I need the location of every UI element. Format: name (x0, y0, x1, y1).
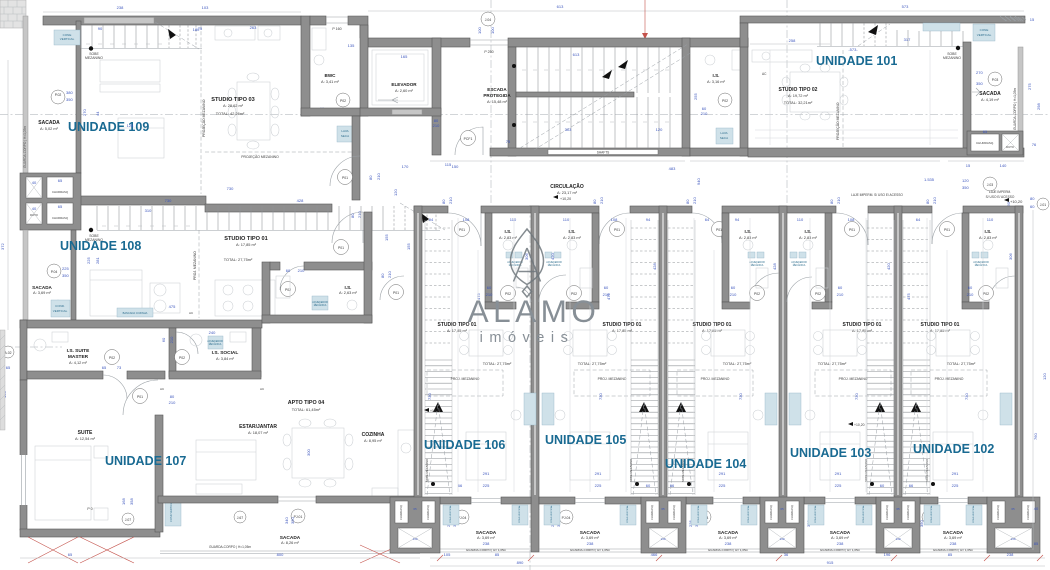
svg-text:210: 210 (692, 197, 697, 204)
svg-text:A: 8,95 m²: A: 8,95 m² (364, 438, 383, 443)
svg-text:PROJ. MEZANINO: PROJ. MEZANINO (701, 377, 730, 381)
svg-text:A.02: A.02 (5, 351, 12, 355)
svg-text:P02: P02 (340, 99, 346, 103)
svg-text:65: 65 (1011, 507, 1015, 511)
svg-text:135: 135 (348, 43, 355, 48)
svg-text:LAVA: LAVA (720, 131, 727, 135)
svg-text:CHURRASQ: CHURRASQ (996, 505, 1000, 520)
svg-text:428: 428 (772, 263, 777, 270)
svg-text:A: 19,72 m²: A: 19,72 m² (788, 93, 809, 98)
svg-text:LAJE IMPERM.: LAJE IMPERM. (989, 190, 1011, 194)
svg-text:85: 85 (948, 552, 953, 557)
svg-text:VERTICAL: VERTICAL (53, 309, 68, 313)
svg-text:263: 263 (250, 25, 257, 30)
svg-text:UNIDADE 106: UNIDADE 106 (424, 438, 505, 452)
svg-text:130: 130 (895, 537, 900, 541)
svg-text:AC: AC (762, 72, 767, 76)
svg-text:P01: P01 (614, 228, 620, 232)
svg-text:15: 15 (966, 163, 971, 168)
svg-text:+10,20: +10,20 (854, 423, 865, 427)
svg-text:65: 65 (58, 178, 63, 183)
svg-text:730: 730 (598, 393, 603, 400)
svg-text:SOBE MEZANINO: SOBE MEZANINO (629, 458, 633, 482)
svg-text:PROJ. MEZANINO: PROJ. MEZANINO (935, 377, 964, 381)
svg-text:GUARDA-CORPO | H= 1,05m: GUARDA-CORPO | H= 1,05m (708, 548, 749, 552)
svg-text:A: 17,85 m²: A: 17,85 m² (236, 242, 257, 247)
svg-text:A: 2,83 m²: A: 2,83 m² (739, 235, 758, 240)
svg-text:A: 17,85 m²: A: 17,85 m² (447, 328, 468, 333)
svg-text:A: 28,62 m²: A: 28,62 m² (223, 103, 244, 108)
svg-text:64: 64 (705, 217, 710, 222)
svg-text:110: 110 (510, 217, 517, 222)
svg-text:80: 80 (925, 199, 930, 204)
svg-text:65: 65 (6, 365, 11, 370)
svg-text:270: 270 (82, 109, 87, 116)
svg-text:P02: P02 (983, 292, 989, 296)
svg-text:108: 108 (611, 217, 618, 222)
svg-text:310: 310 (145, 208, 152, 213)
svg-text:PJ.04: PJ.04 (562, 516, 571, 520)
svg-text:73: 73 (117, 365, 122, 370)
svg-text:66: 66 (909, 483, 914, 488)
svg-text:210: 210 (433, 123, 440, 128)
svg-text:CIRCULAÇÃO: CIRCULAÇÃO (550, 183, 584, 190)
svg-text:COND VERTICAL: COND VERTICAL (697, 505, 700, 523)
svg-text:210: 210 (967, 292, 974, 297)
svg-text:170: 170 (402, 164, 409, 169)
svg-text:210: 210 (376, 173, 381, 180)
svg-text:SECA: SECA (720, 136, 728, 140)
svg-text:COND VERTICAL: COND VERTICAL (747, 505, 750, 523)
svg-text:65: 65 (780, 507, 784, 511)
svg-text:150: 150 (452, 164, 459, 169)
svg-text:+10,20: +10,20 (430, 409, 441, 413)
svg-text:108: 108 (463, 217, 470, 222)
svg-text:TOTAL: 27,75m²: TOTAL: 27,75m² (818, 361, 847, 366)
svg-text:P 250: P 250 (484, 50, 493, 54)
svg-text:I.S.: I.S. (713, 73, 720, 78)
svg-text:36: 36 (784, 552, 789, 557)
svg-text:100: 100 (477, 27, 482, 34)
svg-text:306: 306 (1008, 253, 1013, 260)
svg-text:120: 120 (962, 178, 969, 183)
svg-text:P01: P01 (137, 395, 143, 399)
svg-text:COND VERTICAL: COND VERTICAL (449, 505, 452, 523)
svg-text:MECÂNICA: MECÂNICA (314, 304, 327, 307)
svg-text:J.04: J.04 (485, 18, 492, 22)
svg-text:340: 340 (284, 517, 289, 524)
svg-text:760: 760 (1033, 433, 1038, 440)
svg-text:A: 4,19 m²: A: 4,19 m² (981, 97, 1000, 102)
svg-text:1.535: 1.535 (924, 177, 935, 182)
svg-text:60: 60 (646, 483, 651, 488)
svg-text:380: 380 (66, 90, 73, 95)
svg-text:COND VERTICAL: COND VERTICAL (814, 505, 817, 523)
svg-text:A: 17,85 m²: A: 17,85 m² (852, 328, 873, 333)
svg-text:60: 60 (731, 285, 736, 290)
svg-text:A: 2,63 m²: A: 2,63 m² (339, 290, 358, 295)
svg-text:A: 3,69 m²: A: 3,69 m² (33, 290, 52, 295)
svg-text:P.04: P.04 (51, 270, 58, 274)
svg-text:CHURRASQ: CHURRASQ (650, 505, 654, 520)
svg-text:A: 3,84 m²: A: 3,84 m² (216, 356, 235, 361)
svg-text:60: 60 (838, 285, 843, 290)
svg-text:A: 2,83 m²: A: 2,83 m² (799, 235, 818, 240)
svg-text:40: 40 (32, 206, 37, 211)
svg-text:GUARDA-CORPO | H= 1,05m: GUARDA-CORPO | H= 1,05m (570, 548, 611, 552)
svg-text:130: 130 (660, 537, 665, 541)
svg-text:TOTAL: 32,21m²: TOTAL: 32,21m² (784, 100, 813, 105)
svg-text:730: 730 (427, 393, 432, 400)
svg-text:225: 225 (62, 266, 69, 271)
svg-text:GUARDA-CORPO | H=1,05m: GUARDA-CORPO | H=1,05m (209, 545, 251, 549)
svg-text:613: 613 (573, 52, 580, 57)
svg-text:I.S.: I.S. (569, 229, 576, 234)
svg-text:imóveis: imóveis (480, 330, 575, 346)
svg-text:270: 270 (976, 70, 983, 75)
svg-text:483: 483 (669, 166, 676, 171)
svg-text:94: 94 (646, 217, 651, 222)
svg-text:238: 238 (483, 541, 490, 546)
svg-text:PROJ. MEZANINO: PROJ. MEZANINO (839, 377, 868, 381)
svg-text:UNIDADE 102: UNIDADE 102 (913, 442, 994, 456)
svg-text:64: 64 (916, 217, 921, 222)
svg-text:CHURRASQ: CHURRASQ (885, 505, 889, 520)
svg-text:65: 65 (68, 552, 73, 557)
svg-text:PROJEÇÃO MEZANINO: PROJEÇÃO MEZANINO (835, 102, 840, 140)
svg-text:225: 225 (719, 483, 726, 488)
svg-text:MECÂNICA: MECÂNICA (975, 264, 988, 267)
svg-text:238: 238 (725, 541, 732, 546)
svg-text:130: 130 (779, 537, 784, 541)
svg-text:40: 40 (1034, 506, 1039, 511)
svg-text:COND.: COND. (55, 304, 65, 308)
svg-text:44: 44 (95, 111, 100, 116)
svg-text:PROJ. MEZANINO: PROJ. MEZANINO (193, 251, 197, 280)
svg-text:CHURRASQ: CHURRASQ (52, 216, 69, 220)
svg-text:291: 291 (952, 471, 959, 476)
svg-text:A: 12,54 m²: A: 12,54 m² (75, 436, 96, 441)
svg-text:A: 2,83 m²: A: 2,83 m² (499, 235, 518, 240)
svg-text:100: 100 (490, 27, 495, 34)
svg-text:225: 225 (952, 483, 959, 488)
svg-text:238: 238 (117, 5, 124, 10)
svg-text:A: 3,69 m²: A: 3,69 m² (944, 535, 963, 540)
svg-text:COND VERTICAL: COND VERTICAL (930, 505, 933, 523)
svg-text:PROJ. MEZANINO: PROJ. MEZANINO (451, 377, 480, 381)
svg-text:MECÂNICA: MECÂNICA (548, 264, 561, 267)
svg-text:UNIDADE 107: UNIDADE 107 (105, 454, 186, 468)
svg-text:300: 300 (306, 449, 311, 456)
svg-text:358: 358 (129, 498, 134, 505)
svg-text:225: 225 (483, 483, 490, 488)
svg-text:COND VERTICAL: COND VERTICAL (550, 505, 553, 523)
svg-text:281: 281 (95, 257, 100, 264)
svg-text:210: 210 (169, 400, 176, 405)
svg-text:466: 466 (651, 552, 658, 557)
svg-text:BANCADA COZINHA: BANCADA COZINHA (123, 311, 148, 315)
svg-text:210: 210 (730, 292, 737, 297)
svg-text:CHURRASQ: CHURRASQ (769, 505, 773, 520)
svg-text:UNIDADE 109: UNIDADE 109 (68, 120, 149, 134)
svg-text:A: 3,69 m²: A: 3,69 m² (581, 535, 600, 540)
svg-text:60: 60 (1030, 204, 1035, 209)
svg-text:I.S.: I.S. (985, 229, 992, 234)
svg-text:238: 238 (587, 541, 594, 546)
svg-text:240: 240 (209, 330, 216, 335)
svg-text:372: 372 (0, 243, 5, 250)
svg-text:CHURRASQ: CHURRASQ (672, 505, 676, 520)
svg-text:P 160: P 160 (332, 27, 341, 31)
svg-text:TOTAL: 27,75m²: TOTAL: 27,75m² (224, 257, 253, 262)
svg-text:P02: P02 (754, 292, 760, 296)
svg-text:SECA: SECA (341, 134, 349, 138)
svg-text:120: 120 (1042, 373, 1047, 380)
svg-text:TOTAL: 27,75m²: TOTAL: 27,75m² (483, 361, 512, 366)
svg-text:210: 210 (837, 292, 844, 297)
svg-text:P01: P01 (338, 246, 344, 250)
svg-text:TOTAL: 27,75m²: TOTAL: 27,75m² (947, 361, 976, 366)
svg-text:DUTO: DUTO (1006, 145, 1015, 149)
svg-text:UNIDADE 103: UNIDADE 103 (790, 446, 871, 460)
svg-text:66: 66 (458, 483, 463, 488)
svg-text:291: 291 (483, 471, 490, 476)
svg-text:317: 317 (904, 37, 911, 42)
svg-text:PROJEÇÃO MEZANINO: PROJEÇÃO MEZANINO (241, 154, 279, 159)
svg-text:GUARDA-CORPO | H=1,05m: GUARDA-CORPO | H=1,05m (1013, 88, 1017, 130)
svg-text:110: 110 (797, 217, 804, 222)
svg-text:890: 890 (517, 560, 524, 565)
svg-text:730: 730 (227, 186, 234, 191)
svg-text:65: 65 (58, 204, 63, 209)
svg-text:76: 76 (1032, 142, 1037, 147)
svg-text:PROJEÇÃO MEZANINO: PROJEÇÃO MEZANINO (201, 99, 206, 137)
svg-text:UNIDADE 101: UNIDADE 101 (816, 54, 897, 68)
svg-text:60: 60 (604, 285, 609, 290)
svg-text:60: 60 (487, 285, 492, 290)
svg-text:103: 103 (202, 5, 209, 10)
svg-text:P02: P02 (179, 356, 185, 360)
svg-text:350: 350 (66, 97, 73, 102)
svg-text:A: 2,60 m²: A: 2,60 m² (395, 88, 414, 93)
svg-text:CONE: CONE (980, 28, 989, 32)
svg-text:298: 298 (1036, 103, 1041, 110)
svg-text:J.03: J.03 (987, 183, 994, 187)
svg-text:P01: P01 (849, 228, 855, 232)
svg-text:155: 155 (384, 234, 389, 241)
svg-text:428: 428 (652, 263, 657, 270)
svg-text:GUARDA-CORPO | H=1,05m: GUARDA-CORPO | H=1,05m (23, 126, 27, 168)
svg-text:60: 60 (880, 483, 885, 488)
svg-text:MEZANINO: MEZANINO (85, 56, 103, 60)
svg-text:CHURRASQ: CHURRASQ (1026, 505, 1030, 520)
svg-text:SOBE MEZANINO: SOBE MEZANINO (425, 458, 429, 482)
svg-text:TOTAL: 42,26m²: TOTAL: 42,26m² (216, 111, 245, 116)
svg-text:CHURRASQ: CHURRASQ (790, 505, 794, 520)
svg-text:+10,20: +10,20 (560, 197, 571, 201)
svg-text:A: 15,48 m²: A: 15,48 m² (487, 99, 508, 104)
svg-text:P01: P01 (342, 176, 348, 180)
svg-text:85: 85 (1034, 541, 1039, 546)
svg-text:P01: P01 (716, 228, 722, 232)
svg-text:I.S.: I.S. (505, 229, 512, 234)
svg-text:94: 94 (735, 217, 740, 222)
svg-text:475: 475 (169, 304, 176, 309)
svg-text:-573-: -573- (848, 47, 858, 52)
svg-text:165: 165 (401, 54, 408, 59)
svg-text:A: 23,17 m²: A: 23,17 m² (557, 190, 578, 195)
svg-text:291: 291 (719, 471, 726, 476)
svg-text:TOTAL: 27,75m²: TOTAL: 27,75m² (578, 361, 607, 366)
svg-text:75: 75 (198, 26, 203, 31)
svg-text:J.01: J.01 (1040, 203, 1047, 207)
svg-text:UNIDADE 104: UNIDADE 104 (665, 457, 746, 471)
svg-text:573: 573 (902, 4, 909, 9)
svg-text:LAVA: LAVA (341, 129, 348, 133)
svg-text:350: 350 (962, 185, 969, 190)
svg-text:DUTO: DUTO (30, 213, 39, 217)
svg-text:730: 730 (854, 393, 859, 400)
svg-text:225: 225 (86, 257, 91, 264)
svg-text:A: 18,07 m²: A: 18,07 m² (248, 430, 269, 435)
svg-text:108: 108 (848, 217, 855, 222)
svg-text:P01: P01 (459, 228, 465, 232)
svg-text:65: 65 (102, 365, 107, 370)
svg-text:I.S.: I.S. (805, 229, 812, 234)
svg-text:613: 613 (557, 4, 564, 9)
svg-text:A: 2,83 m²: A: 2,83 m² (563, 235, 582, 240)
svg-text:90: 90 (98, 26, 103, 31)
svg-text:A: 17,85 m²: A: 17,85 m² (702, 328, 723, 333)
svg-text:P02: P02 (109, 356, 115, 360)
svg-text:238: 238 (1007, 552, 1014, 557)
svg-text:65: 65 (983, 129, 988, 134)
svg-text:COND VERTICAL: COND VERTICAL (862, 505, 865, 523)
svg-text:80: 80 (592, 199, 597, 204)
svg-text:60: 60 (161, 337, 166, 342)
svg-text:65: 65 (661, 507, 665, 511)
svg-text:CHURRASQ: CHURRASQ (906, 505, 910, 520)
svg-text:940: 940 (696, 178, 701, 185)
svg-text:238: 238 (950, 541, 957, 546)
svg-text:60: 60 (286, 268, 291, 273)
svg-text:TOTAL: 27,75m²: TOTAL: 27,75m² (723, 361, 752, 366)
svg-text:ELEVADOR: ELEVADOR (391, 82, 417, 87)
svg-text:P.02: P.02 (55, 93, 62, 97)
svg-text:P02: P02 (815, 292, 821, 296)
svg-text:210: 210 (169, 336, 174, 343)
svg-text:210: 210 (932, 197, 937, 204)
svg-text:VERTICAL: VERTICAL (977, 33, 992, 37)
svg-text:420: 420 (550, 253, 555, 260)
svg-text:COND VERTICAL: COND VERTICAL (169, 500, 173, 522)
svg-text:60: 60 (968, 285, 973, 290)
svg-text:420: 420 (886, 263, 891, 270)
svg-text:80: 80 (380, 273, 385, 278)
svg-text:CHURRASQ.: CHURRASQ. (976, 141, 994, 145)
svg-text:94: 94 (429, 217, 434, 222)
svg-text:P.03: P.03 (992, 78, 999, 82)
svg-text:238: 238 (837, 541, 844, 546)
svg-text:P02: P02 (722, 99, 728, 103)
svg-text:475: 475 (906, 293, 911, 300)
svg-text:MEZANINO: MEZANINO (943, 56, 961, 60)
svg-text:COND VERTICAL: COND VERTICAL (626, 505, 629, 523)
svg-text:CHURRASQ: CHURRASQ (399, 505, 403, 520)
svg-text:A: 3,69 m²: A: 3,69 m² (477, 535, 496, 540)
svg-text:LAJE IMPERM. S/ USO E/ ACESSO: LAJE IMPERM. S/ USO E/ ACESSO (851, 193, 903, 197)
svg-text:800: 800 (277, 552, 284, 557)
svg-text:210: 210 (836, 197, 841, 204)
svg-text:SHAFTS: SHAFTS (597, 151, 610, 155)
svg-text:PROJ. MEZANINO: PROJ. MEZANINO (598, 377, 627, 381)
svg-text:75: 75 (506, 139, 511, 144)
svg-text:COND VERTICAL: COND VERTICAL (518, 505, 521, 523)
svg-text:120: 120 (393, 189, 398, 196)
svg-text:258: 258 (789, 38, 796, 43)
svg-text:VERTICAL: VERTICAL (60, 37, 75, 41)
svg-text:A: 4,12 m²: A: 4,12 m² (69, 360, 88, 365)
svg-text:GUARDA-CORPO | H= 1,05m: GUARDA-CORPO | H= 1,05m (820, 548, 861, 552)
svg-text:APTO TIPO 04: APTO TIPO 04 (288, 400, 324, 406)
svg-text:210: 210 (448, 197, 453, 204)
svg-text:210: 210 (701, 111, 708, 116)
svg-text:210: 210 (387, 271, 392, 278)
svg-text:350: 350 (290, 517, 295, 524)
svg-text:350: 350 (976, 81, 983, 86)
svg-text:TOTAL: 61,45m²: TOTAL: 61,45m² (292, 407, 321, 412)
svg-text:140: 140 (1000, 163, 1007, 168)
svg-text:A: 17,85 m²: A: 17,85 m² (612, 328, 633, 333)
svg-text:225: 225 (595, 483, 602, 488)
svg-text:COND VERTICAL: COND VERTICAL (972, 505, 975, 523)
svg-text:130: 130 (1010, 537, 1015, 541)
svg-text:BWC: BWC (325, 73, 337, 78)
svg-text:350: 350 (62, 273, 69, 278)
svg-text:291: 291 (595, 471, 602, 476)
svg-text:ESCADA: ESCADA (487, 87, 507, 92)
svg-text:428: 428 (297, 198, 304, 203)
svg-text:210: 210 (298, 268, 305, 273)
svg-text:128: 128 (127, 123, 134, 128)
svg-text:ALAMO: ALAMO (468, 293, 601, 329)
svg-text:225: 225 (835, 483, 842, 488)
svg-text:730: 730 (964, 393, 969, 400)
svg-text:+10,20: +10,20 (1010, 199, 1023, 204)
svg-text:GUARDA-CORPO | H= 1,05m: GUARDA-CORPO | H= 1,05m (933, 548, 974, 552)
svg-text:A: 3,41 m²: A: 3,41 m² (321, 79, 340, 84)
svg-text:MECÂNICA: MECÂNICA (751, 264, 764, 267)
svg-text:210: 210 (599, 197, 604, 204)
svg-text:120: 120 (656, 127, 663, 132)
svg-text:105: 105 (444, 552, 451, 557)
svg-text:A: 3,16 m²: A: 3,16 m² (707, 79, 726, 84)
svg-text:A: 8,26 m²: A: 8,26 m² (281, 540, 300, 545)
svg-text:P01: P01 (393, 291, 399, 295)
svg-text:40: 40 (32, 180, 37, 185)
svg-text:80: 80 (170, 394, 175, 399)
svg-text:P01: P01 (944, 228, 950, 232)
svg-text:66: 66 (670, 483, 675, 488)
svg-text:475: 475 (606, 293, 611, 300)
svg-text:A: 5,02 m²: A: 5,02 m² (40, 126, 59, 131)
svg-text:168: 168 (121, 498, 126, 505)
svg-text:GUARDA-CORPO | H= 1,05m: GUARDA-CORPO | H= 1,05m (466, 548, 507, 552)
svg-text:275: 275 (1027, 83, 1032, 90)
svg-text:65: 65 (413, 507, 417, 511)
svg-text:80: 80 (350, 213, 355, 218)
svg-text:80: 80 (441, 199, 446, 204)
